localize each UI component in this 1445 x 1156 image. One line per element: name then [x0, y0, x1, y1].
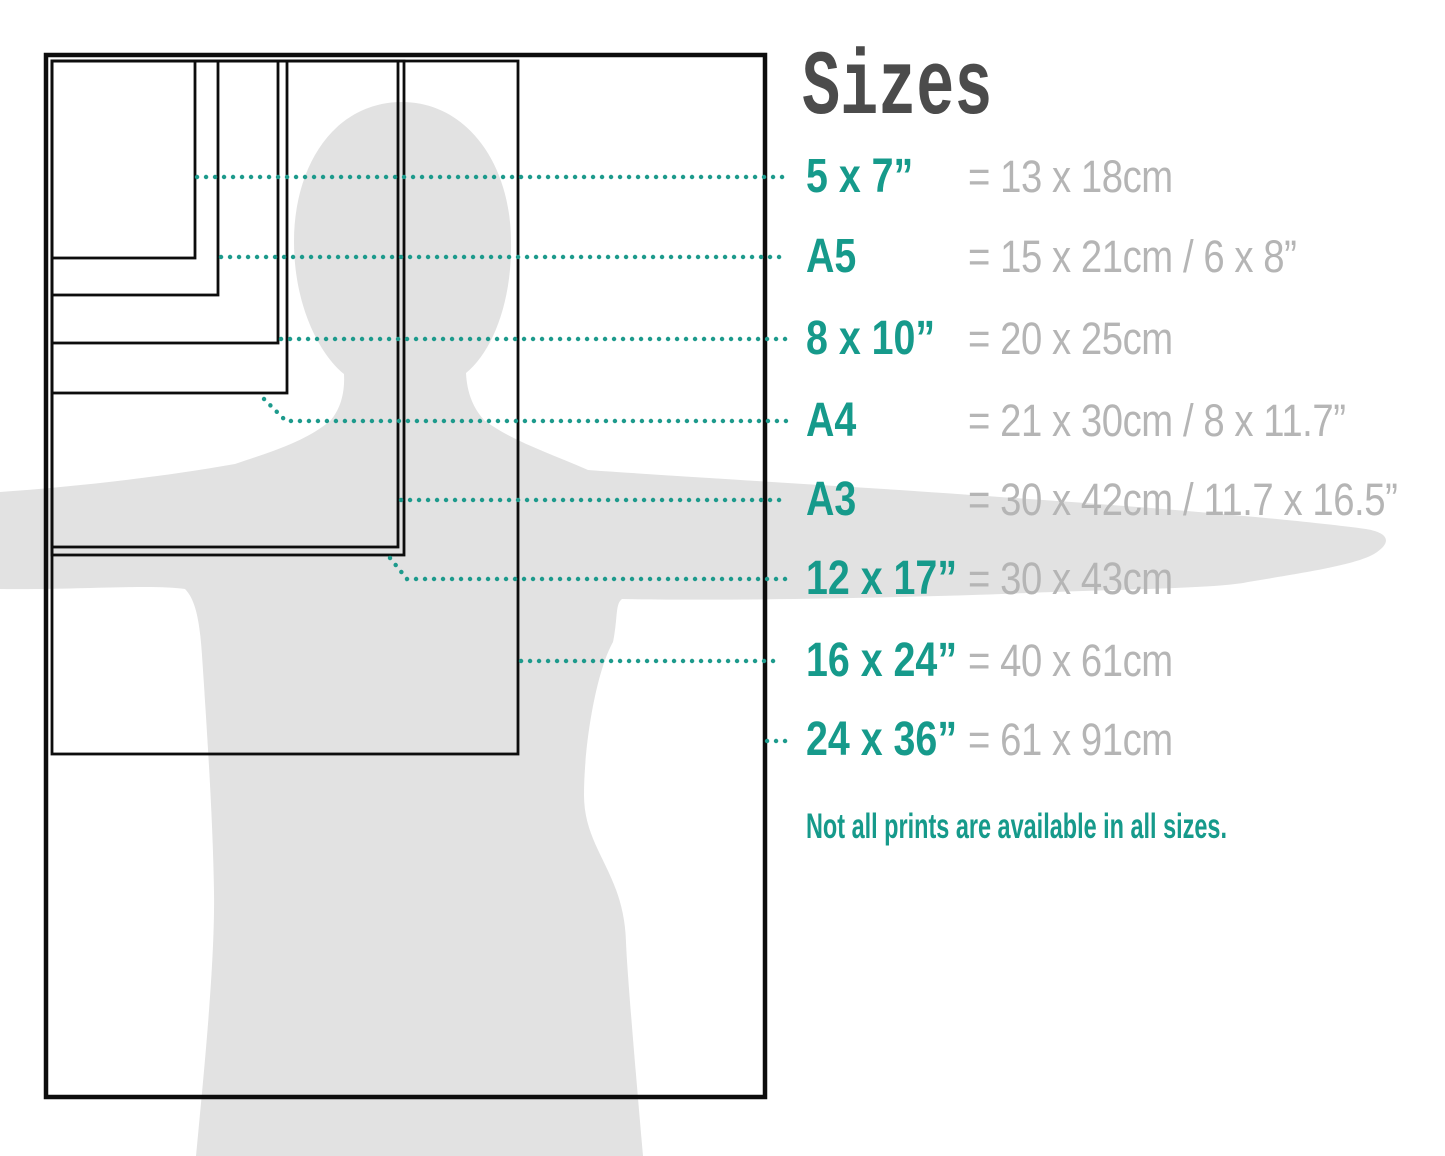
size-label: A4 [806, 399, 856, 443]
size-value: = 21 x 30cm / 8 x 11.7” [968, 399, 1346, 443]
size-row-24x36: 24 x 36” = 61 x 91cm [806, 718, 1445, 762]
size-label: 16 x 24” [806, 639, 957, 683]
size-value: = 13 x 18cm [968, 155, 1173, 199]
size-value: = 61 x 91cm [968, 718, 1173, 762]
size-value: = 40 x 61cm [968, 639, 1173, 683]
size-value: = 15 x 21cm / 6 x 8” [968, 235, 1296, 279]
size-value: = 30 x 43cm [968, 557, 1173, 601]
size-row-16x24: 16 x 24” = 40 x 61cm [806, 639, 1445, 683]
size-rect-8x10 [52, 61, 278, 343]
size-label: 8 x 10” [806, 317, 935, 361]
size-label: 24 x 36” [806, 718, 957, 762]
size-row-5x7: 5 x 7” = 13 x 18cm [806, 155, 1445, 199]
size-value: = 30 x 42cm / 11.7 x 16.5” [968, 478, 1397, 522]
size-rect-5x7 [52, 61, 195, 258]
size-row-12x17: 12 x 17” = 30 x 43cm [806, 557, 1445, 601]
size-value: = 20 x 25cm [968, 317, 1173, 361]
size-rect-a5 [52, 61, 218, 295]
availability-note: Not all prints are available in all size… [806, 810, 1227, 844]
size-label: A3 [806, 478, 856, 522]
size-guide-page: Sizes 5 x 7” = 13 x 18cm A5 = 15 x 21cm … [0, 0, 1445, 1156]
size-row-8x10: 8 x 10” = 20 x 25cm [806, 317, 1445, 361]
size-label: A5 [806, 235, 856, 279]
page-title: Sizes [802, 43, 992, 135]
size-label: 12 x 17” [806, 557, 957, 601]
size-row-a3: A3 = 30 x 42cm / 11.7 x 16.5” [806, 478, 1445, 522]
size-row-a4: A4 = 21 x 30cm / 8 x 11.7” [806, 399, 1445, 443]
size-row-a5: A5 = 15 x 21cm / 6 x 8” [806, 235, 1445, 279]
size-label: 5 x 7” [806, 155, 913, 199]
